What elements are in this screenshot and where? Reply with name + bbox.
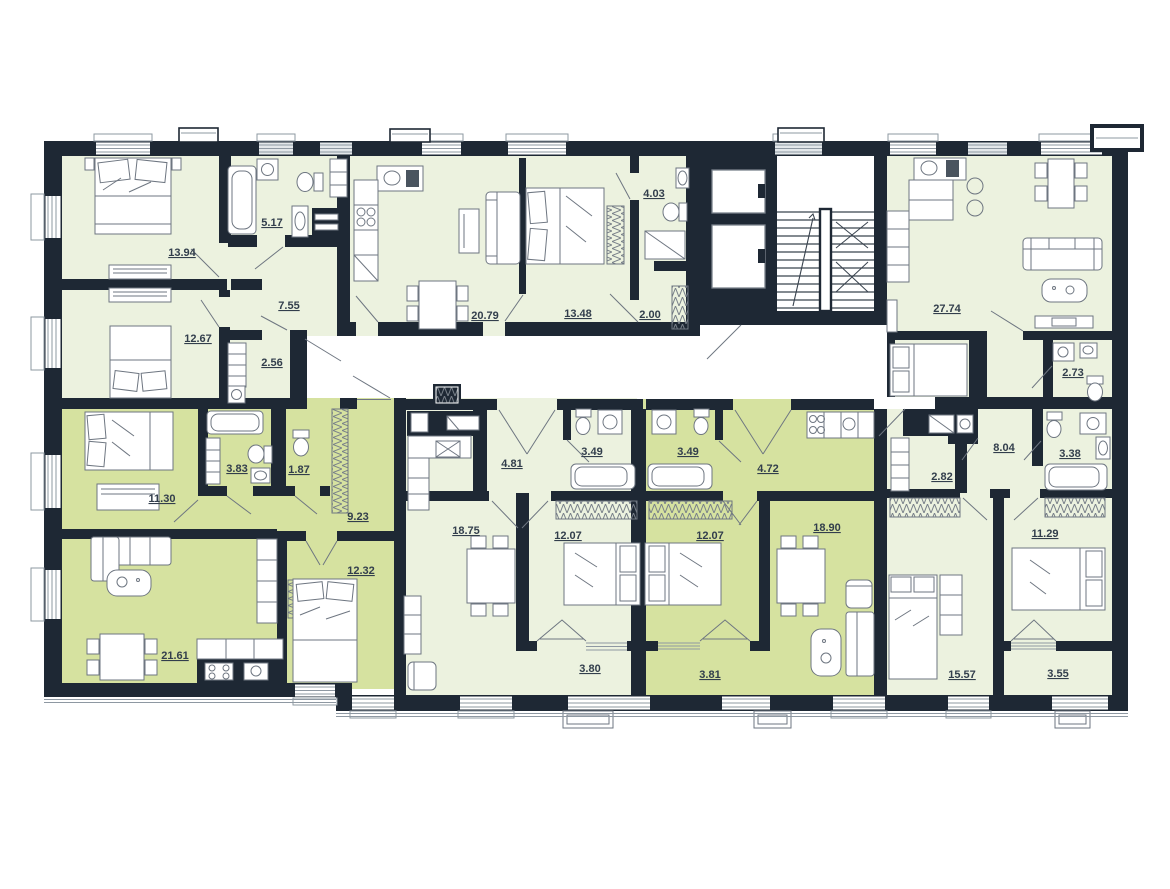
svg-text:8.04: 8.04 bbox=[993, 442, 1015, 454]
svg-text:2.82: 2.82 bbox=[931, 471, 952, 483]
svg-text:11.30: 11.30 bbox=[149, 493, 176, 505]
svg-text:7.55: 7.55 bbox=[278, 300, 299, 312]
svg-text:1.87: 1.87 bbox=[288, 464, 309, 476]
svg-text:11.29: 11.29 bbox=[1032, 528, 1059, 540]
svg-text:5.17: 5.17 bbox=[261, 217, 282, 229]
svg-text:3.81: 3.81 bbox=[699, 669, 720, 681]
svg-text:12.07: 12.07 bbox=[554, 530, 582, 542]
svg-text:3.80: 3.80 bbox=[579, 663, 600, 675]
svg-text:12.07: 12.07 bbox=[696, 530, 724, 542]
svg-text:4.81: 4.81 bbox=[501, 458, 522, 470]
svg-text:13.48: 13.48 bbox=[564, 308, 592, 320]
svg-text:3.49: 3.49 bbox=[581, 446, 602, 458]
svg-text:9.23: 9.23 bbox=[347, 511, 368, 523]
svg-text:13.94: 13.94 bbox=[168, 247, 196, 259]
svg-text:4.72: 4.72 bbox=[757, 463, 778, 475]
svg-text:3.83: 3.83 bbox=[226, 463, 247, 475]
svg-text:18.75: 18.75 bbox=[452, 525, 480, 537]
svg-text:2.00: 2.00 bbox=[639, 309, 660, 321]
svg-text:20.79: 20.79 bbox=[471, 310, 499, 322]
svg-text:18.90: 18.90 bbox=[813, 522, 841, 534]
svg-text:3.38: 3.38 bbox=[1059, 448, 1080, 460]
svg-text:3.49: 3.49 bbox=[677, 446, 698, 458]
svg-text:4.03: 4.03 bbox=[643, 188, 664, 200]
svg-text:2.73: 2.73 bbox=[1062, 367, 1083, 379]
svg-text:27.74: 27.74 bbox=[933, 303, 961, 315]
svg-text:2.56: 2.56 bbox=[261, 357, 282, 369]
svg-text:15.57: 15.57 bbox=[948, 669, 976, 681]
svg-text:12.32: 12.32 bbox=[347, 565, 375, 577]
svg-text:21.61: 21.61 bbox=[161, 650, 189, 662]
svg-text:12.67: 12.67 bbox=[184, 333, 212, 345]
svg-text:3.55: 3.55 bbox=[1047, 668, 1068, 680]
